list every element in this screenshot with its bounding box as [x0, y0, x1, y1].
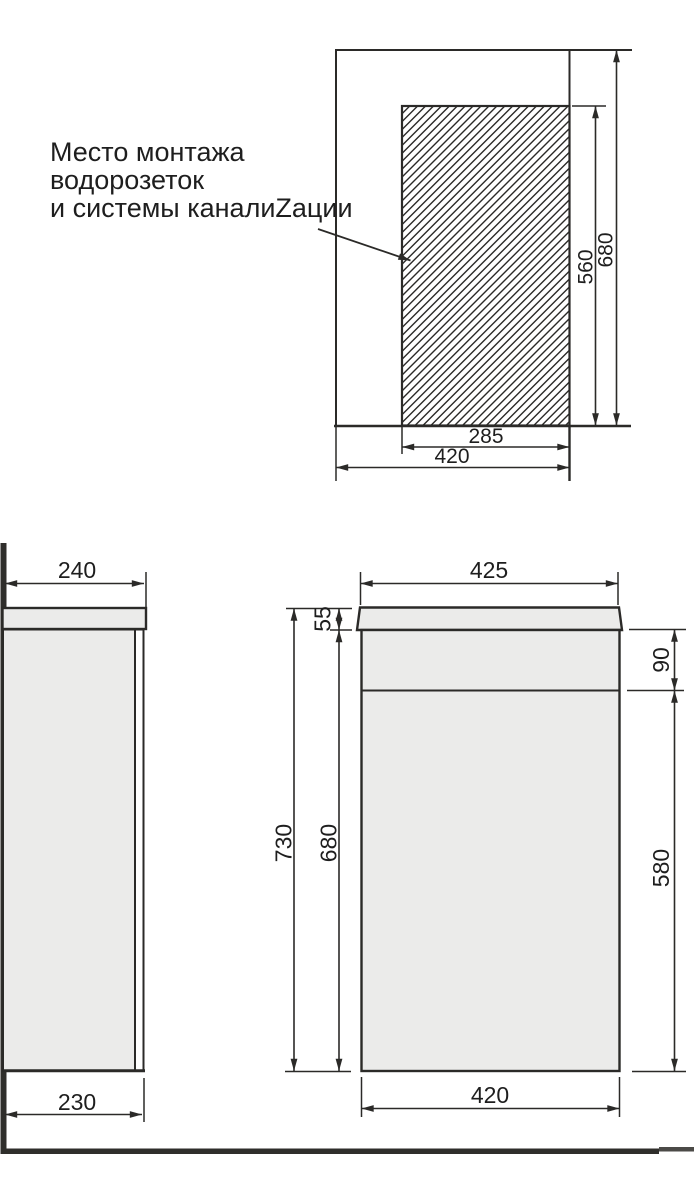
plan-view: 560 680 285 420 Место монтажа водорозето… — [50, 50, 632, 481]
technical-drawing: 560 680 285 420 Место монтажа водорозето… — [0, 0, 694, 1200]
side-door-panel — [135, 630, 144, 1071]
dim-680-label: 680 — [595, 232, 618, 267]
annotation-line-1: Место монтажа — [50, 137, 246, 167]
front-view: 425 730 680 55 90 580 420 — [271, 557, 687, 1117]
dim-55-label: 55 — [310, 606, 336, 632]
annotation-text: Место монтажа водорозеток и системы кана… — [50, 137, 353, 223]
floor-bar — [1, 1149, 660, 1155]
dim-90-label: 90 — [648, 647, 674, 673]
floor-bar-right — [659, 1147, 694, 1152]
dim-420-label: 420 — [434, 445, 469, 468]
annotation-line-3: и системы каналиZации — [50, 193, 353, 223]
dim-420-front-label: 420 — [471, 1082, 509, 1108]
dim-580-label: 580 — [648, 849, 674, 887]
front-countertop — [357, 608, 622, 631]
hatch-area — [402, 106, 570, 426]
side-body — [3, 630, 135, 1071]
dim-285-label: 285 — [468, 425, 503, 448]
front-body — [362, 630, 620, 1071]
dim-425-label: 425 — [470, 557, 508, 583]
dim-230-label: 230 — [58, 1089, 96, 1115]
dim-680-front-label: 680 — [316, 824, 342, 862]
side-countertop — [3, 608, 147, 629]
annotation-line-2: водорозеток — [50, 165, 204, 195]
drawing-page: 560 680 285 420 Место монтажа водорозето… — [0, 0, 694, 1200]
dim-730-label: 730 — [271, 824, 297, 862]
dim-240-label: 240 — [58, 557, 96, 583]
